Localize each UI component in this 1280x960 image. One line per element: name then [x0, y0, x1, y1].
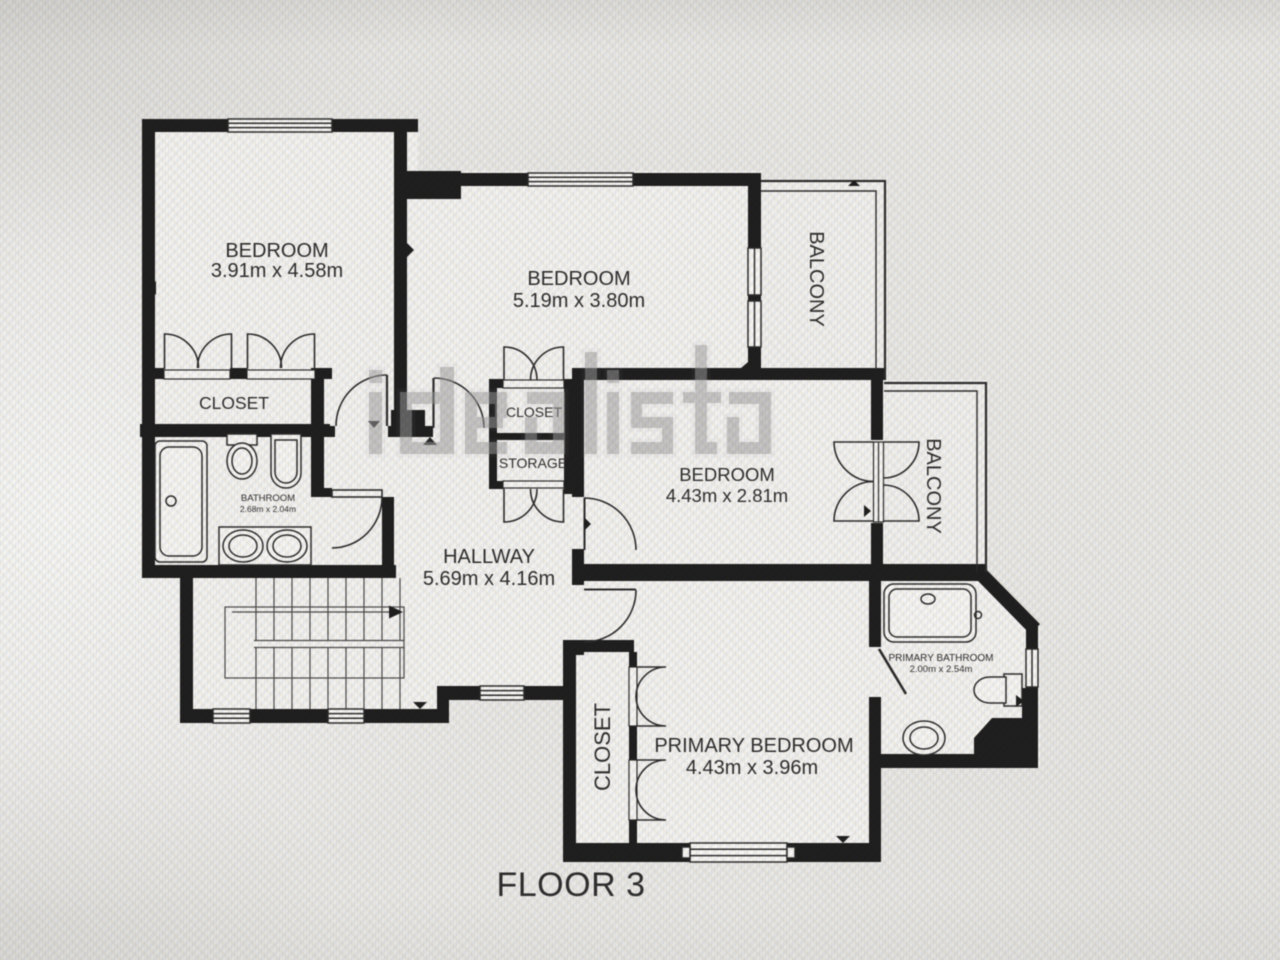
svg-text:BEDROOM: BEDROOM — [679, 464, 775, 485]
svg-text:2.68m x 2.04m: 2.68m x 2.04m — [240, 504, 296, 514]
svg-text:5.19m x 3.80m: 5.19m x 3.80m — [513, 290, 645, 312]
svg-text:5.69m x 4.16m: 5.69m x 4.16m — [423, 568, 555, 590]
svg-text:2.00m x 2.54m: 2.00m x 2.54m — [910, 664, 973, 675]
svg-text:3.91m x 4.58m: 3.91m x 4.58m — [211, 260, 343, 282]
svg-text:BEDROOM: BEDROOM — [225, 240, 328, 262]
svg-text:4.43m x 2.81m: 4.43m x 2.81m — [666, 485, 788, 506]
svg-text:FLOOR 3: FLOOR 3 — [497, 866, 646, 904]
svg-text:CLOSET: CLOSET — [590, 703, 615, 791]
svg-text:PRIMARY BEDROOM: PRIMARY BEDROOM — [654, 735, 853, 757]
svg-text:BALCONY: BALCONY — [922, 438, 944, 534]
svg-text:BEDROOM: BEDROOM — [527, 268, 630, 290]
svg-text:BATHROOM: BATHROOM — [241, 493, 295, 504]
svg-text:PRIMARY BATHROOM: PRIMARY BATHROOM — [888, 653, 993, 664]
svg-text:HALLWAY: HALLWAY — [443, 546, 535, 568]
svg-text:4.43m x 3.96m: 4.43m x 3.96m — [686, 757, 818, 779]
svg-text:BALCONY: BALCONY — [805, 231, 827, 327]
svg-text:CLOSET: CLOSET — [199, 393, 269, 413]
